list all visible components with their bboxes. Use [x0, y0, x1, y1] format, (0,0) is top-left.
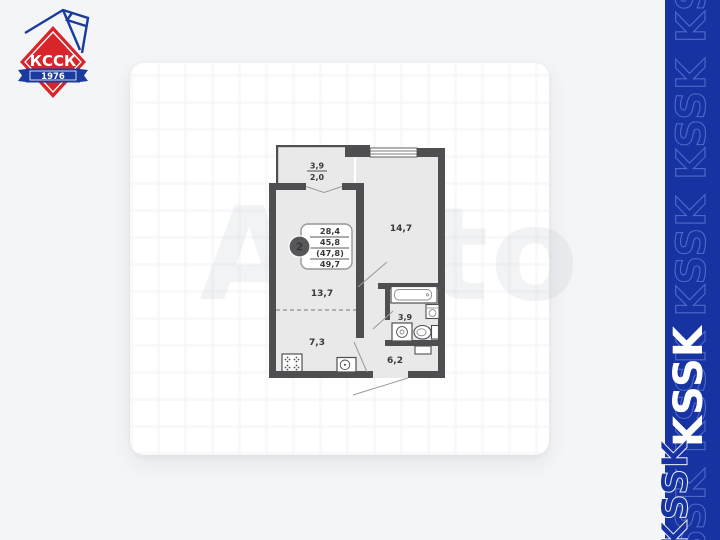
toilet-icon — [414, 326, 439, 340]
area-value-2: 45,8 — [320, 237, 341, 247]
living-area-label: 13,7 — [311, 289, 333, 299]
area-value-1: 28,4 — [320, 226, 341, 236]
logo-diamond: КССК — [20, 26, 86, 98]
rooms-count: 2 — [296, 241, 304, 254]
bathroom-area-label: 3,9 — [398, 313, 413, 322]
kitchen-sink-icon — [337, 358, 356, 373]
brand-strip-white-text: KSSK — [669, 325, 709, 447]
page-background: { "logo": { "title": "КССК", "year": "19… — [0, 0, 720, 540]
stove-icon — [282, 354, 302, 372]
hallway-area-label: 6,2 — [387, 356, 403, 366]
bathtub-icon — [391, 287, 437, 304]
duct-box — [415, 346, 431, 354]
washbasin-icon — [426, 305, 439, 319]
floor-plan: 3,9 2,0 14,7 13,7 7,3 3,9 6,2 28,4 45,8 … — [265, 140, 455, 400]
logo-title: КССК — [30, 52, 77, 70]
brand-strip-blue-text: KSSK — [658, 439, 694, 540]
logo-year: 1976 — [41, 72, 65, 82]
builder-logo: КССК 1976 — [12, 4, 112, 104]
washing-machine-icon — [392, 323, 412, 341]
area-value-3: (47,8) — [316, 248, 344, 258]
area-value-4: 49,7 — [320, 259, 341, 269]
balcony-area-top: 3,9 — [310, 162, 325, 171]
kitchen-area-label: 7,3 — [309, 338, 325, 348]
room-area-label: 14,7 — [390, 224, 412, 234]
logo-ribbon: 1976 — [18, 69, 88, 83]
window — [370, 148, 417, 157]
entrance-door-swing — [353, 378, 408, 395]
balcony-area-bottom: 2,0 — [310, 173, 325, 182]
